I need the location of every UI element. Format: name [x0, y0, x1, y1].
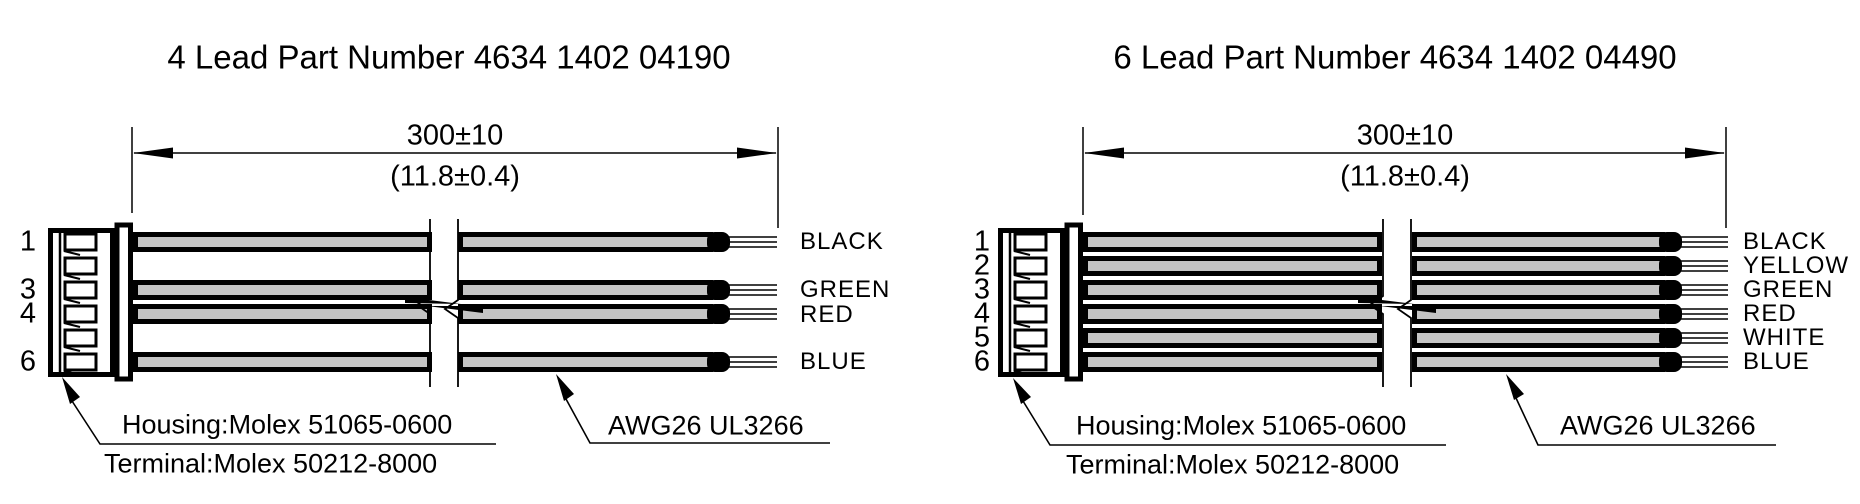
wire-end-cap [1659, 280, 1682, 300]
wire-end-cap [707, 304, 730, 324]
pin-number: 6 [974, 348, 990, 377]
wire-row-3 [1086, 280, 1729, 300]
stripped-strands [729, 357, 777, 367]
wire-label: GREEN [1743, 278, 1833, 302]
stripped-strands [1681, 261, 1728, 271]
connector-4lead [51, 225, 131, 379]
stripped-strands [1681, 285, 1728, 295]
housing-callout-text: Housing:Molex 51065-0600 [122, 412, 452, 439]
connector-mating-face [117, 225, 131, 379]
dimension-mm: 300±10 [1357, 122, 1454, 151]
stripped-strands [1681, 333, 1728, 343]
dimension-inch: (11.8±0.4) [390, 163, 520, 192]
wire-label: BLUE [800, 350, 867, 374]
wire-label: RED [1743, 302, 1797, 326]
wire-label: BLUE [1743, 350, 1810, 374]
leader-arrowhead [1013, 378, 1031, 404]
dimension-arrow-right [737, 148, 777, 159]
wire-label: BLACK [800, 230, 884, 254]
connector-6lead [1001, 225, 1081, 379]
pin-number: 4 [20, 300, 36, 329]
pin-number: 1 [20, 228, 36, 257]
wire-end-cap [1659, 328, 1682, 348]
figure-title: 4 Lead Part Number 4634 1402 04190 [167, 41, 730, 74]
wire-end-cap [1659, 256, 1682, 276]
stripped-strands [1681, 357, 1728, 367]
connector-mating-face [1067, 225, 1081, 379]
wire-end-cap [707, 280, 730, 300]
stripped-strands [729, 309, 777, 319]
wiring-diagram-page: 4 Lead Part Number 4634 1402 04190 300±1… [0, 0, 1860, 504]
leader-arrowhead [1506, 374, 1524, 400]
wire-row-6 [1086, 352, 1729, 372]
figure-title: 6 Lead Part Number 4634 1402 04490 [1113, 41, 1676, 74]
wire-spec-text: AWG26 UL3266 [1560, 413, 1756, 440]
dimension-arrow-left [133, 148, 173, 159]
wire-end-cap [1659, 232, 1682, 252]
wire-label: GREEN [800, 278, 890, 302]
wire-row-1 [136, 232, 778, 252]
dimension-mm: 300±10 [407, 122, 504, 151]
stripped-strands [729, 285, 777, 295]
wire-row-3 [136, 280, 778, 300]
wire-label: YELLOW [1743, 254, 1849, 278]
stripped-strands [729, 237, 777, 247]
wire-spec-text: AWG26 UL3266 [608, 413, 804, 440]
wire-label: WHITE [1743, 326, 1825, 350]
housing-callout-text: Housing:Molex 51065-0600 [1076, 413, 1406, 440]
wire-end-cap [1659, 304, 1682, 324]
terminal-callout-text: Terminal:Molex 50212-8000 [104, 451, 437, 478]
leader-arrowhead [556, 374, 574, 401]
wire-row-5 [1086, 328, 1729, 348]
pin-number: 6 [20, 348, 36, 377]
wire-end-cap [707, 232, 730, 252]
stripped-strands [1681, 237, 1728, 247]
wire-end-cap [1659, 352, 1682, 372]
wire-row-1 [1086, 232, 1729, 252]
wire-label: RED [800, 303, 854, 327]
dimension-arrow-right [1685, 148, 1725, 159]
wire-label: BLACK [1743, 230, 1827, 254]
leader-arrowhead [62, 377, 80, 404]
wire-row-2 [1086, 256, 1729, 276]
terminal-callout-text: Terminal:Molex 50212-8000 [1066, 452, 1399, 479]
stripped-strands [1681, 309, 1728, 319]
dimension-arrow-left [1084, 148, 1124, 159]
wire-row-6 [136, 352, 778, 372]
dimension-inch: (11.8±0.4) [1340, 163, 1470, 192]
wire-end-cap [707, 352, 730, 372]
